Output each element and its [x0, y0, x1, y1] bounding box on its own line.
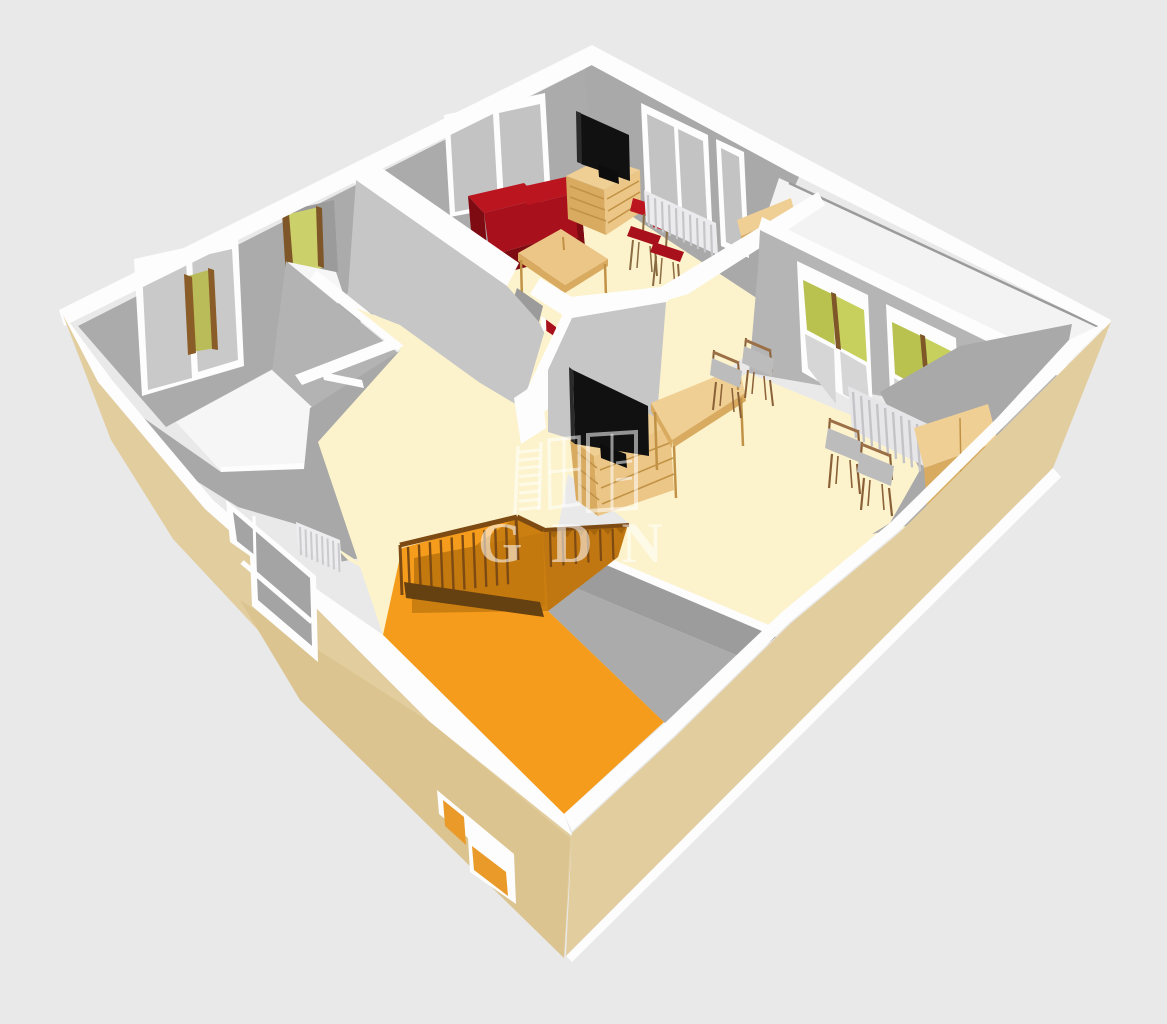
- svg-text:GDN: GDN: [478, 512, 692, 575]
